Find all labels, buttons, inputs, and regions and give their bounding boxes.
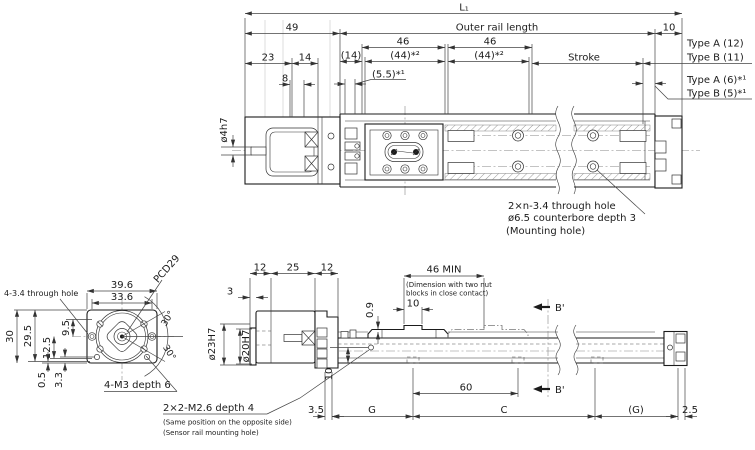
dim-pcd29: PCD29 (152, 253, 183, 285)
dim-5-5: (5.5)*¹ (372, 70, 405, 81)
sensor-rail-hole (369, 345, 374, 350)
end-cap-side (664, 332, 687, 366)
note-4-3-4-through-hole: 4-3.4 through hole (4, 289, 78, 298)
mounting-holes (513, 130, 599, 172)
dim-44b: (44)*² (474, 51, 504, 62)
note-nut-blocks-1: (Dimension with two nut (406, 281, 492, 289)
dim-14: 14 (299, 53, 312, 64)
break-line (574, 325, 579, 375)
label-type-a6: Type A (6)*¹ (686, 75, 746, 86)
dim-phi20h7: ø20H7 (241, 330, 252, 363)
side-view-dimensions: 12 25 12 3 46 MIN (Dimension with two nu… (163, 263, 698, 438)
linear-actuator-dimension-drawing: L₁ 49 Outer rail length 10 46 46 (14) (4… (0, 0, 755, 450)
rail-cutout (620, 163, 646, 174)
note-through-hole: 2×n-3.4 through hole (508, 201, 616, 212)
front-view-drawing: 30° 30° 39.6 33.6 PCD29 4-3.4 through ho… (4, 253, 183, 391)
break-line (572, 106, 577, 194)
label-b-prime-upper: B' (555, 303, 565, 314)
dim-g-paren: (G) (628, 405, 644, 416)
dim-0-9: 0.9 (365, 302, 376, 318)
note-m26-opposite: (Same position on the opposite side) (163, 419, 292, 427)
dim-46min: 46 MIN (427, 265, 462, 276)
dim-9-5: 9.5 (61, 320, 72, 336)
dim-l1: L₁ (459, 3, 469, 14)
dim-3: 3 (227, 287, 233, 298)
technical-drawing-page: L₁ 49 Outer rail length 10 46 46 (14) (4… (0, 0, 755, 450)
dim-25: 25 (287, 263, 300, 274)
dim-12b: 12 (321, 263, 334, 274)
side-view-drawing: B' B' 12 25 12 3 46 (163, 263, 698, 438)
dim-29-5: 29.5 (23, 325, 34, 347)
dim-14p: (14) (341, 51, 362, 62)
dim-8: 8 (282, 74, 288, 85)
dim-c: C (501, 405, 508, 416)
rail-cutout (620, 131, 646, 142)
dim-44a: (44)*² (390, 51, 420, 62)
label-b-prime-lower: B' (555, 385, 565, 396)
dim-33-6: 33.6 (111, 292, 133, 303)
dim-12-5: 12.5 (42, 337, 53, 359)
dim-23: 23 (262, 53, 275, 64)
dim-46b: 46 (484, 37, 497, 48)
note-m26-sensor: (Sensor rail mounting hole) (163, 429, 259, 437)
note-m26: 2×2-M2.6 depth 4 (163, 403, 254, 414)
dim-outer-rail-length: Outer rail length (456, 23, 538, 34)
dim-39-6: 39.6 (111, 280, 133, 291)
dim-phi4h7: ø4h7 (219, 117, 230, 142)
dim-10-left: 10 (324, 368, 335, 381)
dim-30deg-upper: 30° (160, 310, 177, 329)
label-type-a12: Type A (12) (686, 39, 744, 50)
note-nut-blocks-2: blocks in close contact) (406, 290, 489, 298)
dim-46a: 46 (397, 37, 410, 48)
note-mounting-hole: (Mounting hole) (506, 226, 585, 237)
motor-housing-top (245, 117, 340, 184)
idler-parts (345, 128, 360, 174)
break-line (556, 325, 561, 375)
dim-3-3: 3.3 (54, 372, 65, 388)
dim-g: G (368, 405, 376, 416)
end-cap-top (655, 116, 682, 188)
dim-10-end: 10 (663, 23, 676, 34)
label-type-b5: Type B (5)*¹ (686, 89, 746, 100)
carriage-top (365, 124, 443, 180)
dim-stroke: Stroke (568, 53, 600, 64)
dim-30deg-lower: 30° (160, 344, 177, 363)
dim-49: 49 (286, 23, 299, 34)
dim-2-5: 2.5 (682, 405, 698, 416)
dim-phi23h7: ø23H7 (207, 328, 218, 361)
motor-housing-side (250, 311, 315, 365)
top-view-drawing: L₁ 49 Outer rail length 10 46 46 (14) (4… (219, 3, 752, 238)
rail-cutout (448, 163, 474, 174)
dim-3-5: 3.5 (308, 405, 324, 416)
break-line (556, 106, 561, 194)
note-counterbore: ø6.5 counterbore depth 3 (508, 213, 636, 224)
section-marker-b-lower: B' (533, 385, 565, 396)
dim-30: 30 (5, 330, 16, 343)
dim-12a: 12 (254, 263, 267, 274)
label-type-b11: Type B (11) (686, 53, 744, 64)
motor-shaft (251, 147, 266, 155)
dim-60: 60 (460, 383, 473, 394)
dim-10-boss: 10 (407, 299, 420, 310)
dim-0-5: 0.5 (37, 372, 48, 388)
rail-cutout (448, 131, 474, 142)
note-4-m3-depth6: 4-M3 depth 6 (104, 380, 171, 391)
bearing-bracket-side (315, 311, 374, 368)
